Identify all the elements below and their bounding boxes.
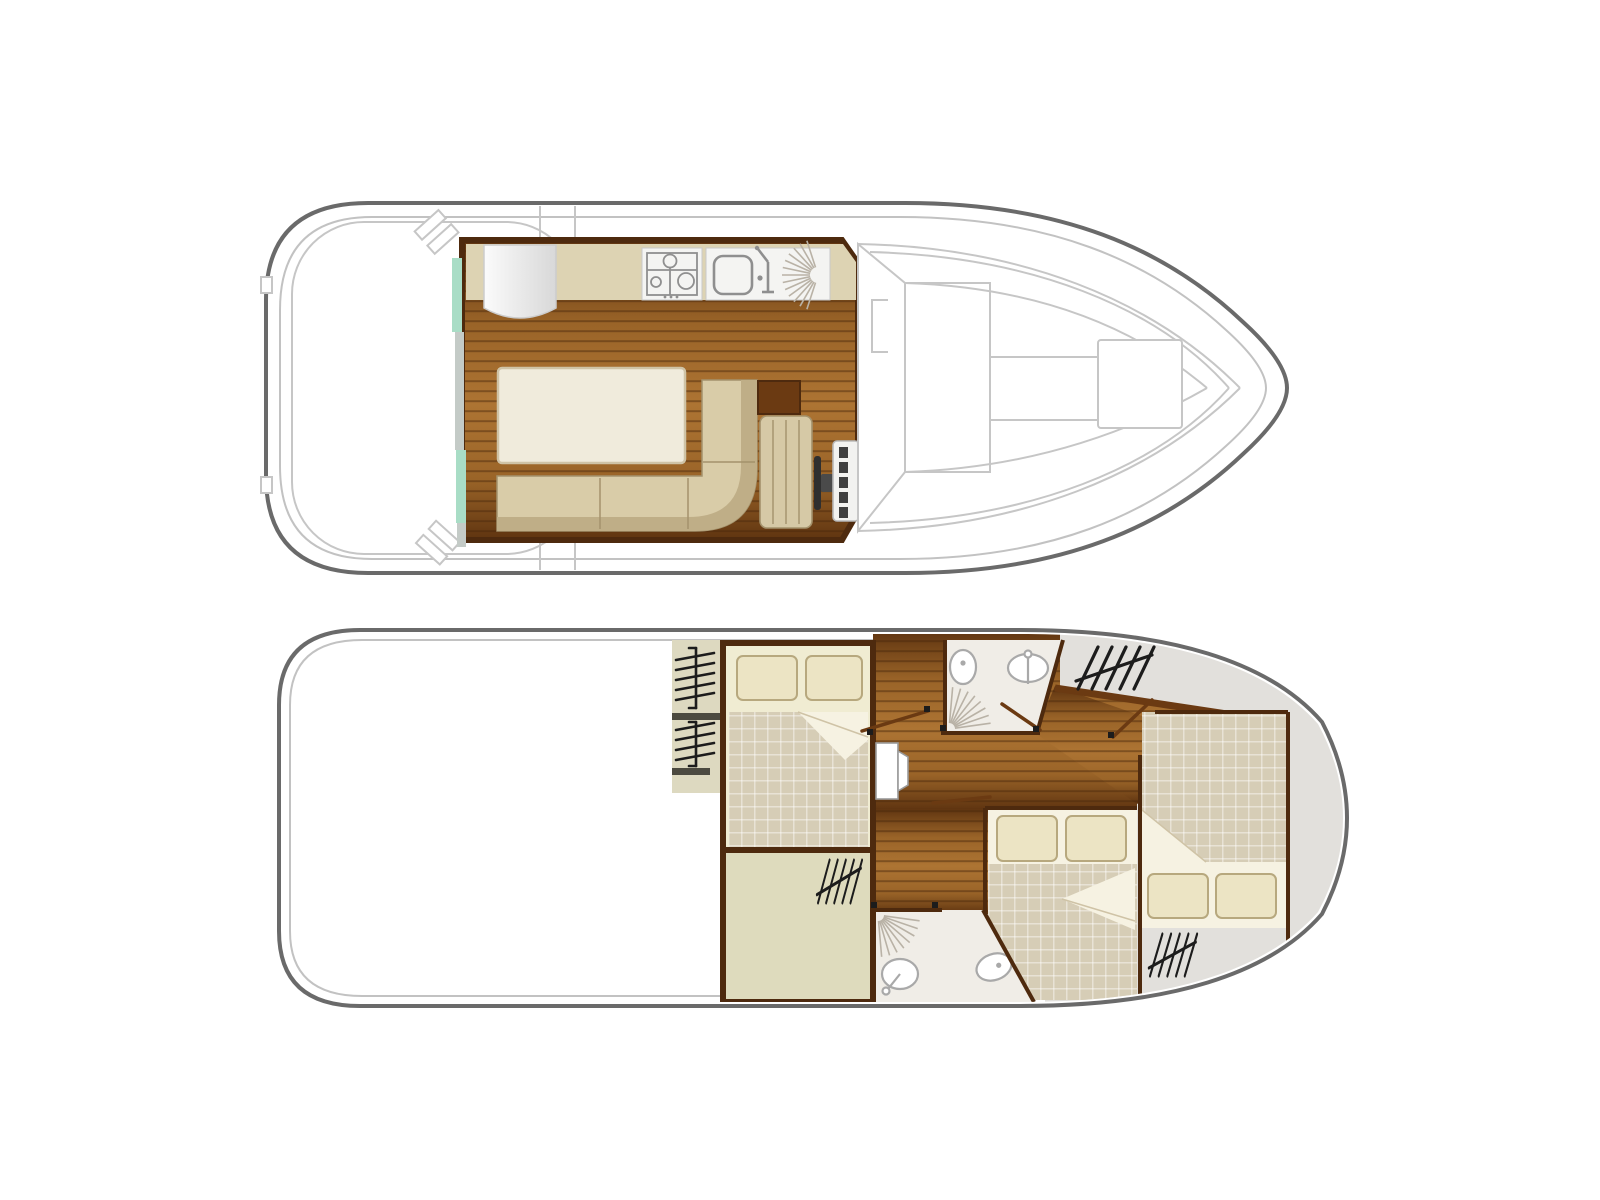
upper-deck-plan [261, 203, 1287, 573]
cabinet [758, 381, 800, 414]
double-bed [1142, 712, 1288, 928]
pillow [737, 656, 797, 700]
pillow [1216, 874, 1276, 918]
lower-deck-plan [279, 630, 1350, 1006]
roof-hatch [1098, 340, 1182, 428]
hull-notch [261, 277, 272, 293]
floorplan-drawing [0, 0, 1600, 1200]
hull-notch [261, 477, 272, 493]
instrument-panel-icon [833, 441, 859, 521]
pillow [997, 816, 1057, 861]
pillow [1148, 874, 1208, 918]
pillow [806, 656, 862, 700]
steering-wheel-icon [814, 456, 821, 510]
aft-storage-room [723, 850, 873, 1002]
fridge-icon [484, 245, 556, 318]
companionway-steps [672, 640, 723, 793]
toilet-icon [950, 650, 976, 684]
aft-cabin [723, 640, 873, 852]
stove-icon [642, 248, 702, 300]
dining-table [498, 368, 685, 463]
pillow [1066, 816, 1126, 861]
boat-floorplan-page [0, 0, 1600, 1200]
